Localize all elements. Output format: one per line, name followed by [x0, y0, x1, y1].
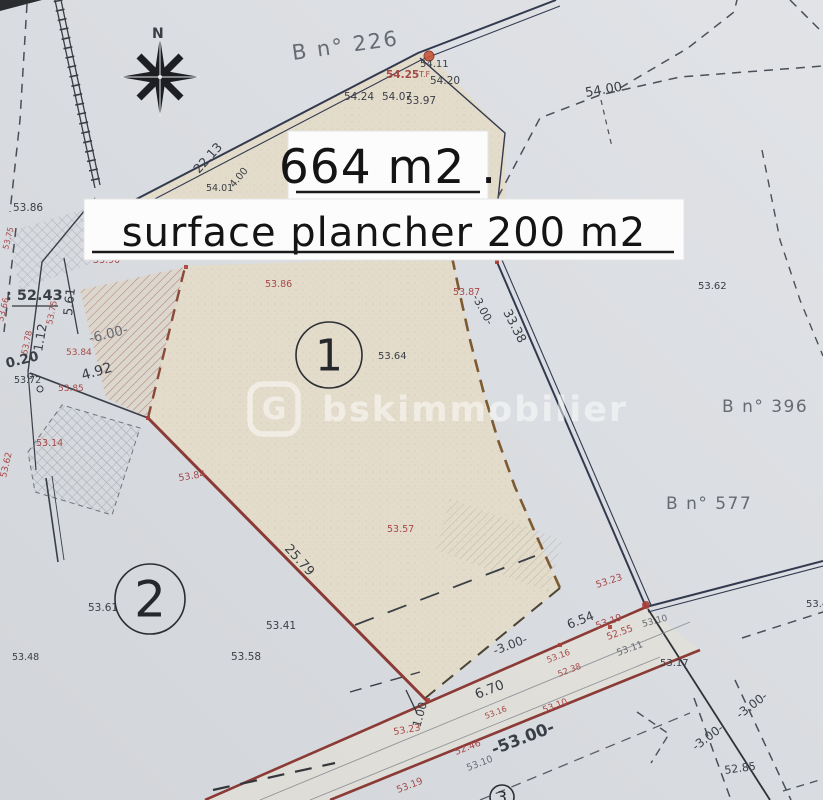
agency-logo-letter: G: [262, 392, 287, 427]
measurement-label: 54.11: [420, 59, 449, 70]
measurement-label: 5.61: [60, 287, 78, 316]
measurement-label: 53.86: [265, 279, 292, 290]
parcel-number: 1: [315, 330, 343, 381]
measurement-label: 53.84: [66, 348, 92, 358]
measurement-label: 53.58: [231, 651, 261, 663]
measurement-label: 54.20: [430, 75, 460, 87]
measurement-label: 53.14: [36, 438, 63, 449]
cadastral-plan-scan: NB n° 22654.1154.25T.F54.2054.2454.0753.…: [0, 0, 823, 800]
measurement-label: 53.48: [12, 652, 39, 663]
measurement-label: 53.41: [266, 620, 296, 632]
measurement-label: 54.24: [344, 91, 374, 103]
plan-canvas: NB n° 22654.1154.25T.F54.2054.2454.0753.…: [0, 0, 823, 800]
measurement-label: B n° 577: [666, 494, 752, 514]
measurement-label: 53.97: [406, 95, 436, 107]
measurement-label: 53.61: [88, 602, 118, 614]
measurement-label: 53.85: [58, 384, 84, 394]
parcel-number: 2: [134, 571, 166, 629]
watermark-text: bskimmobilier: [322, 390, 628, 430]
measurement-label: 53.64: [378, 351, 407, 362]
area-annotation-text: 664 m2 .: [279, 140, 497, 195]
measurement-label: 54.01: [206, 183, 233, 194]
parcel-number: 3: [497, 788, 507, 800]
measurement-label: 53.4: [806, 599, 823, 610]
measurement-label: B n° 396: [722, 397, 808, 417]
measurement-label: 53.86: [13, 202, 43, 214]
measurement-label: 53.62: [698, 281, 727, 292]
measurement-label: 53.57: [387, 524, 414, 535]
measurement-label: T.F: [418, 70, 430, 79]
measurement-label: 53.17: [660, 658, 689, 669]
measurement-label: N: [152, 26, 164, 42]
floor-area-annotation-text: surface plancher 200 m2: [122, 210, 647, 256]
measurement-label: 54.25: [386, 69, 419, 81]
measurement-label: 53.72: [14, 375, 41, 386]
